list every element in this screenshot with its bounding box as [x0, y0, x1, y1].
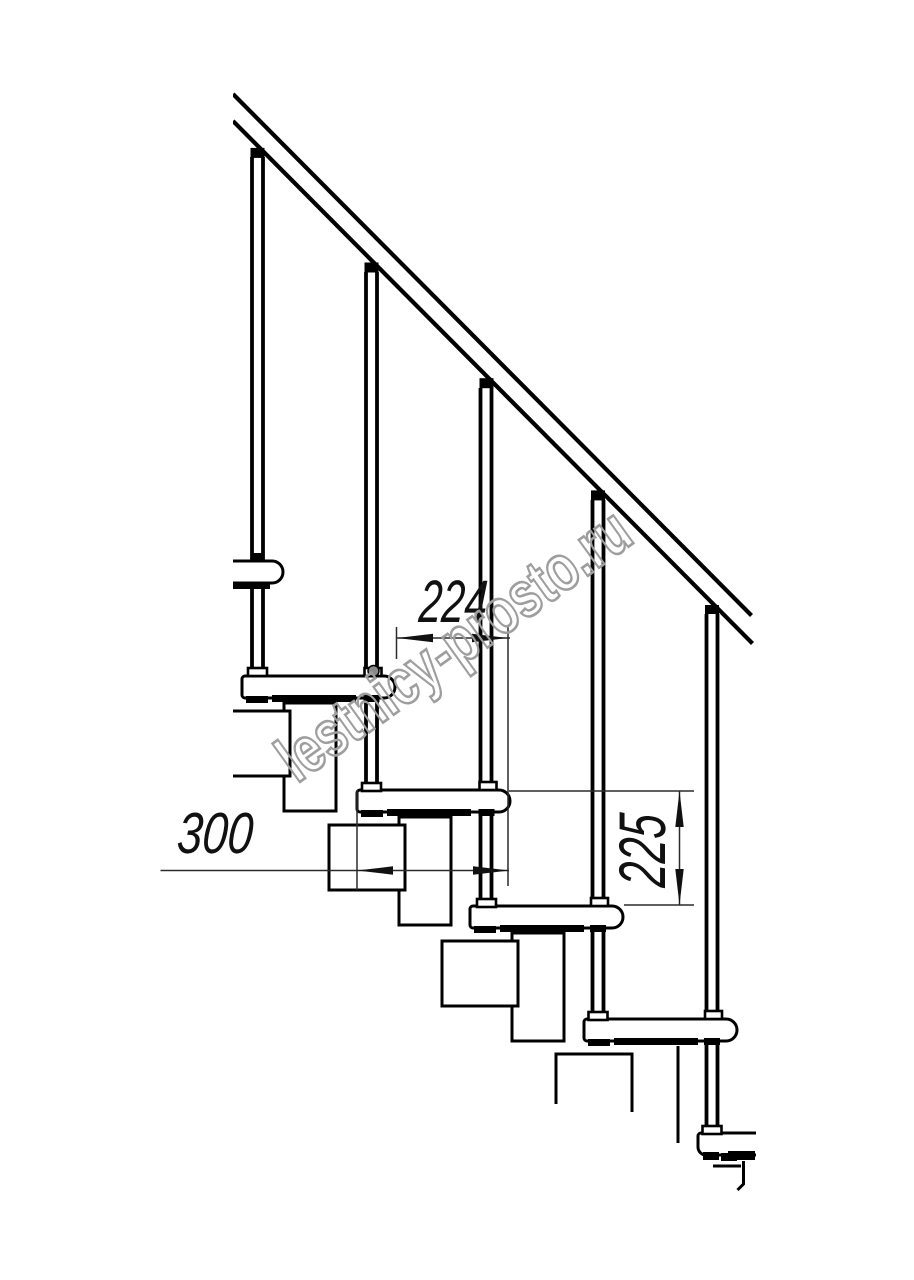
- svg-text:225: 225: [605, 811, 679, 890]
- svg-text:300: 300: [175, 802, 256, 867]
